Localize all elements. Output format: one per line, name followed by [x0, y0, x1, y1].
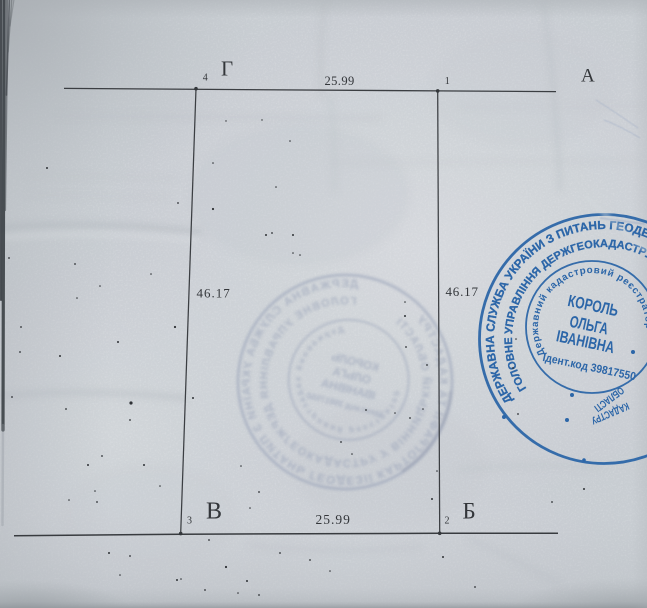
svg-text:В: В — [206, 499, 222, 525]
svg-text:25.99: 25.99 — [316, 512, 351, 527]
svg-text:1: 1 — [445, 76, 450, 87]
svg-text:Б: Б — [463, 499, 476, 524]
svg-text:46.17: 46.17 — [197, 285, 231, 300]
svg-text:25.99: 25.99 — [325, 74, 355, 88]
svg-text:46.17: 46.17 — [446, 284, 479, 299]
svg-text:3: 3 — [187, 515, 192, 526]
svg-text:2: 2 — [445, 515, 450, 526]
svg-text:А: А — [581, 66, 595, 87]
svg-text:4: 4 — [203, 73, 208, 84]
svg-text:Г: Г — [221, 57, 233, 81]
